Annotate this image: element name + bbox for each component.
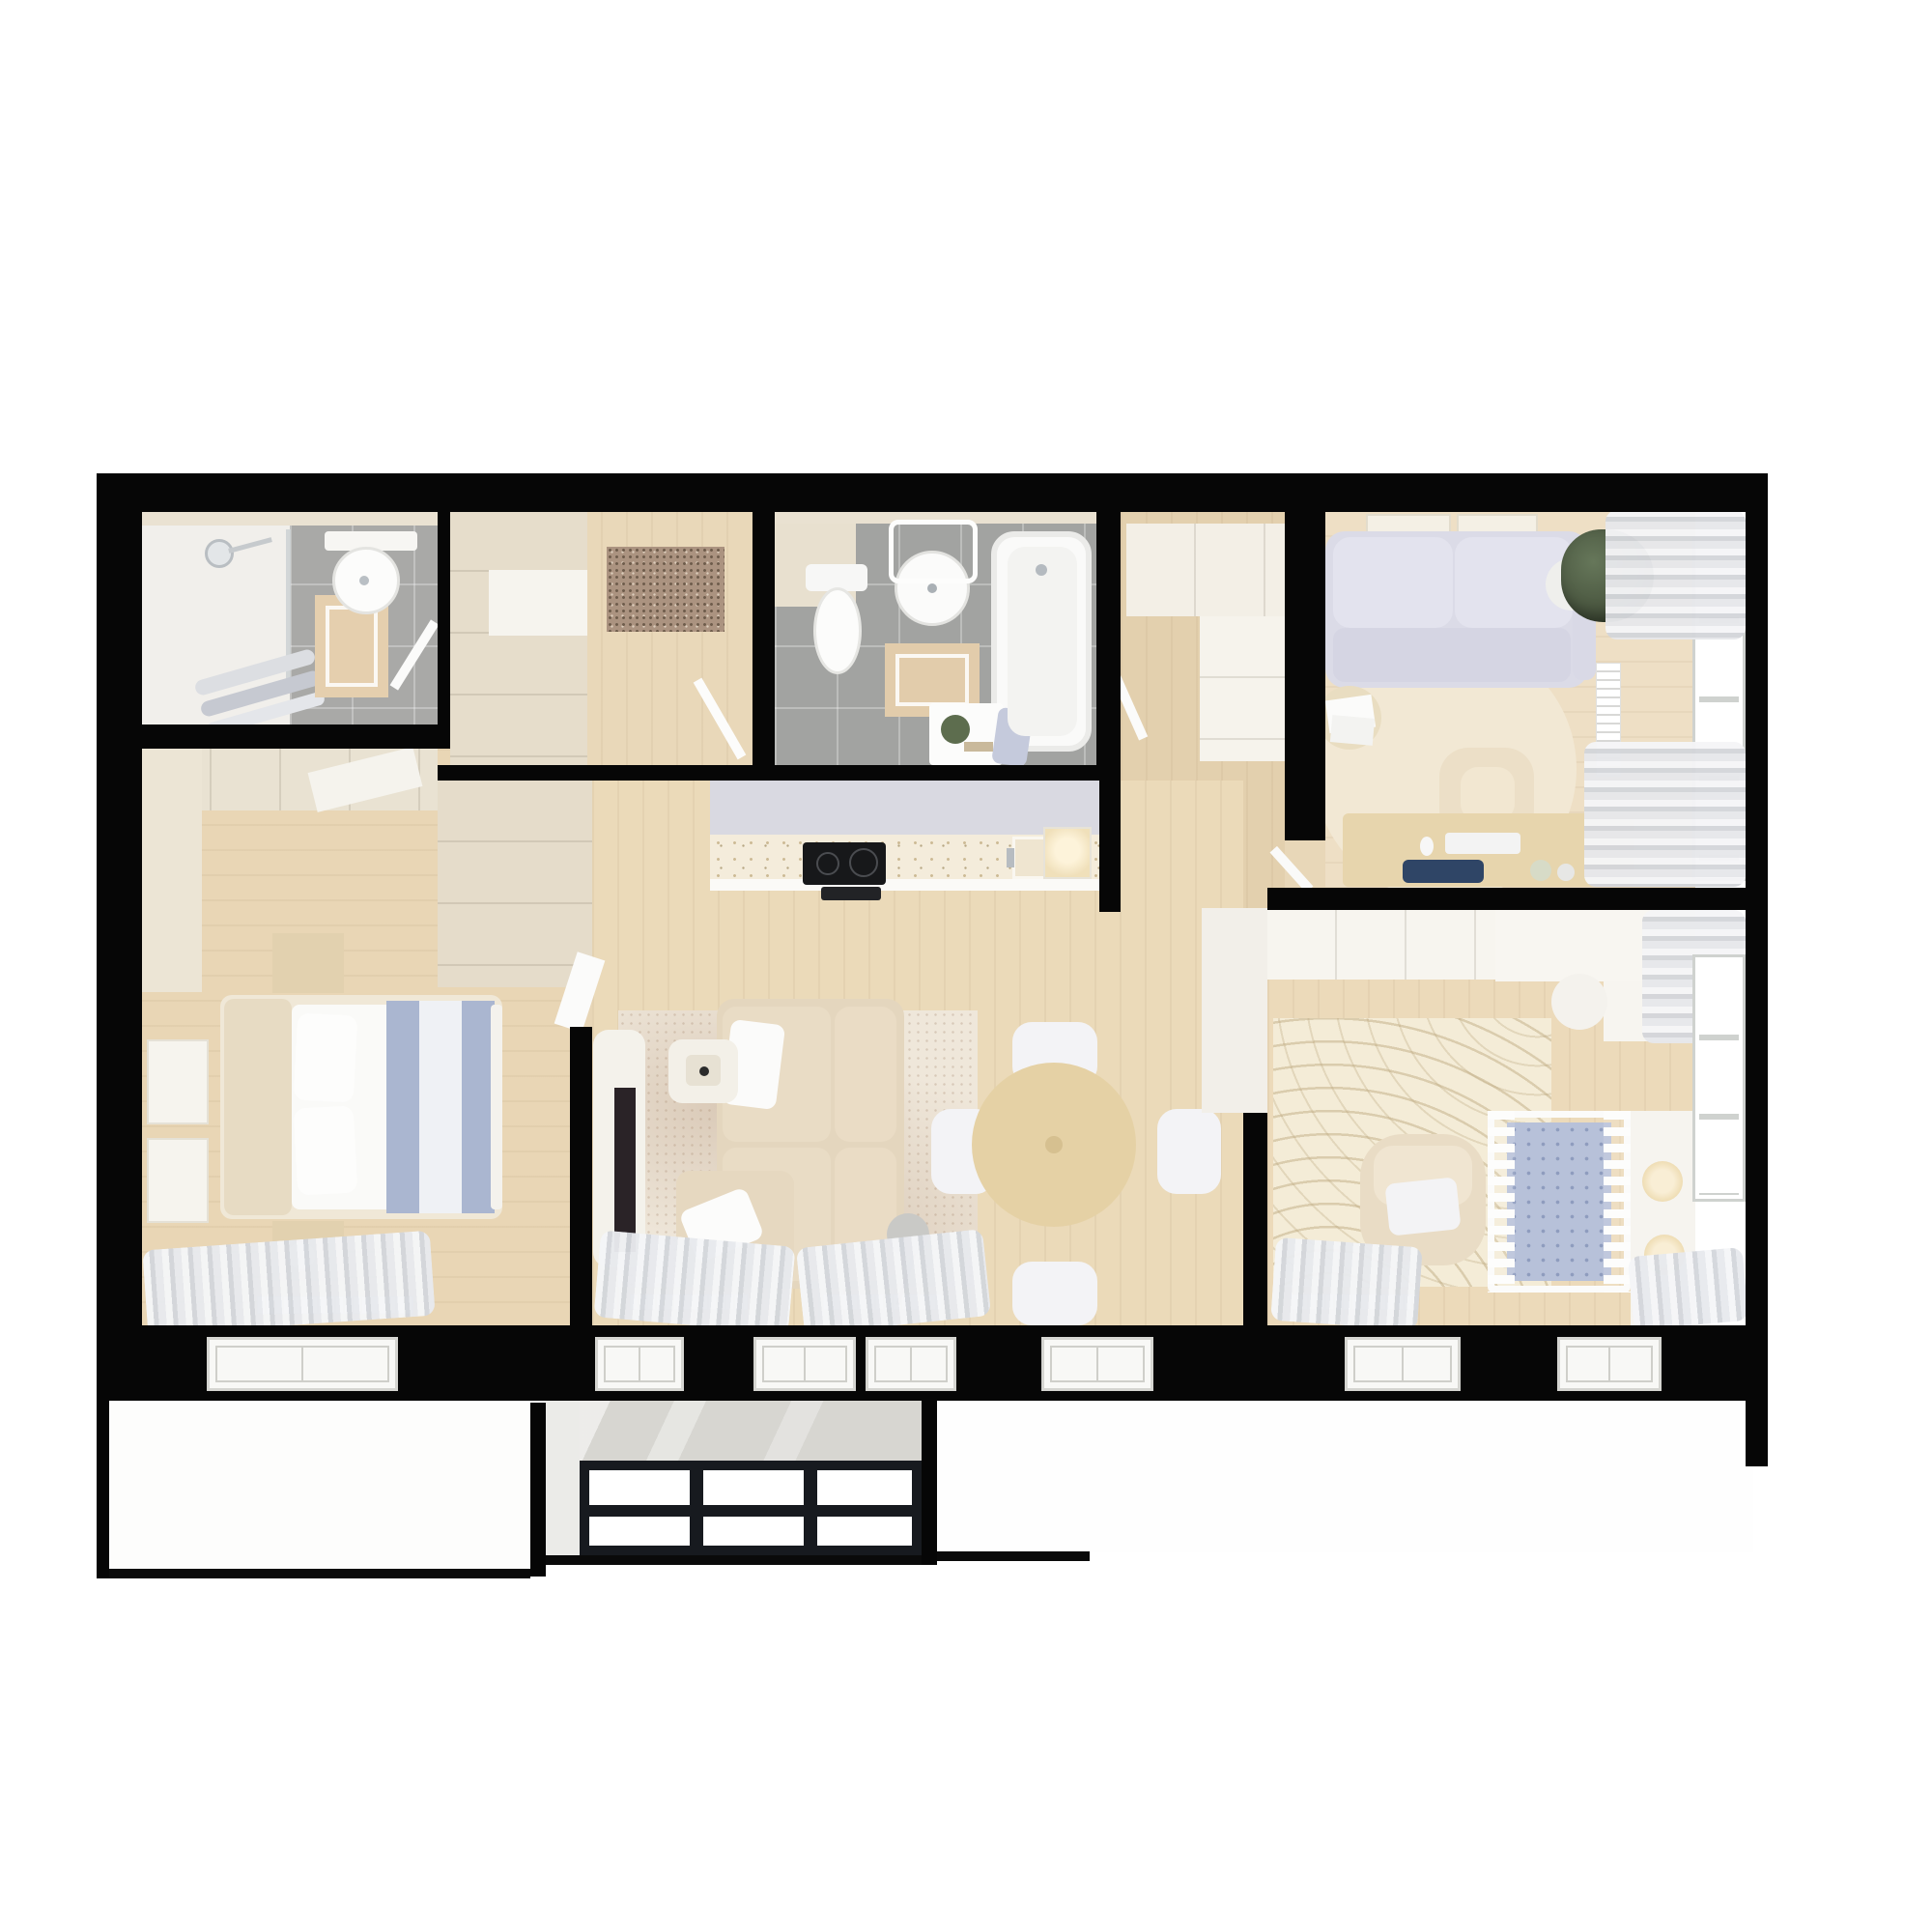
office-sofa-seat [1333, 628, 1571, 682]
bed-blanket-blue-2 [462, 1001, 495, 1213]
window-kids-south-2 [1345, 1337, 1461, 1391]
wall-bath1-closet [438, 510, 450, 749]
bath2-plant-icon [941, 715, 970, 744]
wall-kids-living [1243, 1113, 1267, 1325]
wall-bath2-hall [1096, 510, 1121, 781]
kids-wall-lamp-1 [1642, 1161, 1683, 1202]
wall-right [1746, 473, 1768, 1466]
bath1-wall-strip [142, 510, 438, 526]
wall-kitchen-hall [1099, 781, 1121, 912]
office-keyboard [1445, 833, 1520, 854]
dining-chair-s [1012, 1262, 1097, 1325]
floor-plan [0, 0, 1932, 1932]
kitchen-burner-1 [816, 852, 839, 875]
bed-pillow-2 [294, 1105, 358, 1195]
office-curtain-bottom [1584, 742, 1746, 887]
closet-shelf-inset [489, 570, 587, 636]
office-mouse [1420, 837, 1434, 856]
kitchen-burner-2 [849, 848, 878, 877]
balcony-concrete-floor [580, 1398, 922, 1465]
bedroom-art-frame-1 [147, 1039, 209, 1124]
nightstand-north [272, 933, 344, 993]
kids-window-east [1692, 954, 1746, 1202]
wall-closet-bath2 [753, 510, 775, 767]
wall-terrace-right [530, 1403, 546, 1577]
office-magazine-2 [1330, 715, 1375, 746]
dining-chair-e [1157, 1109, 1221, 1194]
kids-armchair-pillow [1384, 1177, 1461, 1236]
kitchen-faucet-icon [1007, 848, 1014, 867]
bed-blanket-blue-1 [386, 1001, 419, 1213]
bed-footboard [491, 1005, 502, 1209]
bedroom-wardrobe-left [142, 749, 202, 992]
window-living-south-3 [866, 1337, 956, 1391]
hall-cabinet-north [1126, 524, 1285, 616]
office-curtain-top [1605, 510, 1746, 639]
window-bedroom-south [207, 1337, 398, 1391]
terrace-floor [109, 1403, 530, 1569]
bedroom-art-frame-2 [147, 1138, 209, 1223]
wall-bath1-bottom [142, 724, 450, 749]
wall-hall-office [1285, 510, 1325, 840]
bed-pillow-1 [294, 1012, 358, 1102]
kitchen-oven-glow [1043, 827, 1092, 879]
kids-wardrobe [1267, 910, 1497, 980]
office-sofa-cushion-1 [1333, 537, 1453, 628]
terrace-bottom-line [97, 1569, 530, 1578]
kids-chair [1551, 974, 1607, 1030]
bath1-sink-drain [359, 576, 369, 585]
wall-balcony-right [922, 1398, 937, 1565]
wall-top [97, 473, 1768, 512]
window-kids-south-3 [1557, 1337, 1662, 1391]
roof-band-bottom-line [937, 1551, 1090, 1561]
kids-crib-rail-right [1604, 1111, 1631, 1293]
balcony-left-wall [546, 1398, 582, 1555]
dining-table-center [1045, 1136, 1063, 1153]
bedroom-wardrobe-right [438, 781, 592, 987]
kitchen-vent [821, 887, 881, 900]
kids-curtain-bottom-2 [1628, 1247, 1748, 1330]
kitchen-counter-edge [710, 879, 1099, 891]
tv [614, 1088, 636, 1252]
bed-blanket-white [419, 1001, 462, 1213]
window-kids-south-1 [1041, 1337, 1153, 1391]
bath2-sink-drain [927, 583, 937, 593]
kids-curtain-bottom-1 [1270, 1237, 1423, 1330]
closet-carpet [607, 547, 724, 632]
bath2-toilet-bowl [813, 587, 862, 674]
balcony-glass-grid [580, 1461, 922, 1555]
roof-band-right [937, 1398, 1753, 1552]
kitchen-counter-back [710, 781, 1099, 837]
living-curtain-1 [593, 1230, 795, 1333]
hall-wardrobe-east [1200, 616, 1285, 761]
wall-kids-pilaster [1202, 908, 1267, 1113]
office-glass [1557, 864, 1575, 881]
balcony-bottom-line [546, 1555, 937, 1565]
bed-headboard [224, 999, 292, 1215]
wall-left [97, 473, 142, 1328]
wall-office-kids [1267, 888, 1746, 910]
sofa-back-cushion-n [835, 1007, 896, 1142]
kids-crib-rail-left [1488, 1111, 1515, 1293]
wall-mid-bottom [438, 765, 1121, 781]
bath1-shower-head-icon [205, 539, 234, 568]
closet-cabinets [450, 510, 587, 767]
wall-bedroom-living [570, 1027, 592, 1325]
window-living-south-1 [595, 1337, 684, 1391]
bath2-faucet-icon [1036, 564, 1047, 576]
window-living-south-2 [753, 1337, 856, 1391]
bath2-tray [964, 742, 993, 752]
coffee-table-bowl [699, 1066, 709, 1076]
office-bottle [1530, 860, 1551, 881]
bath2-sink-light-frame [889, 520, 978, 583]
office-tablet [1403, 860, 1484, 883]
